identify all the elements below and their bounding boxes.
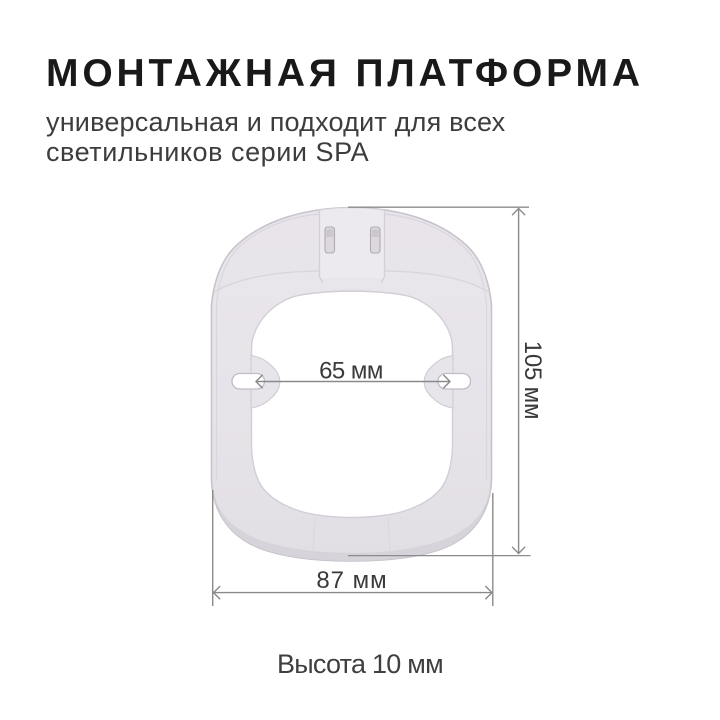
svg-text:105 мм: 105 мм bbox=[519, 341, 546, 420]
svg-text:87 мм: 87 мм bbox=[316, 567, 387, 594]
svg-text:65 мм: 65 мм bbox=[319, 358, 383, 385]
